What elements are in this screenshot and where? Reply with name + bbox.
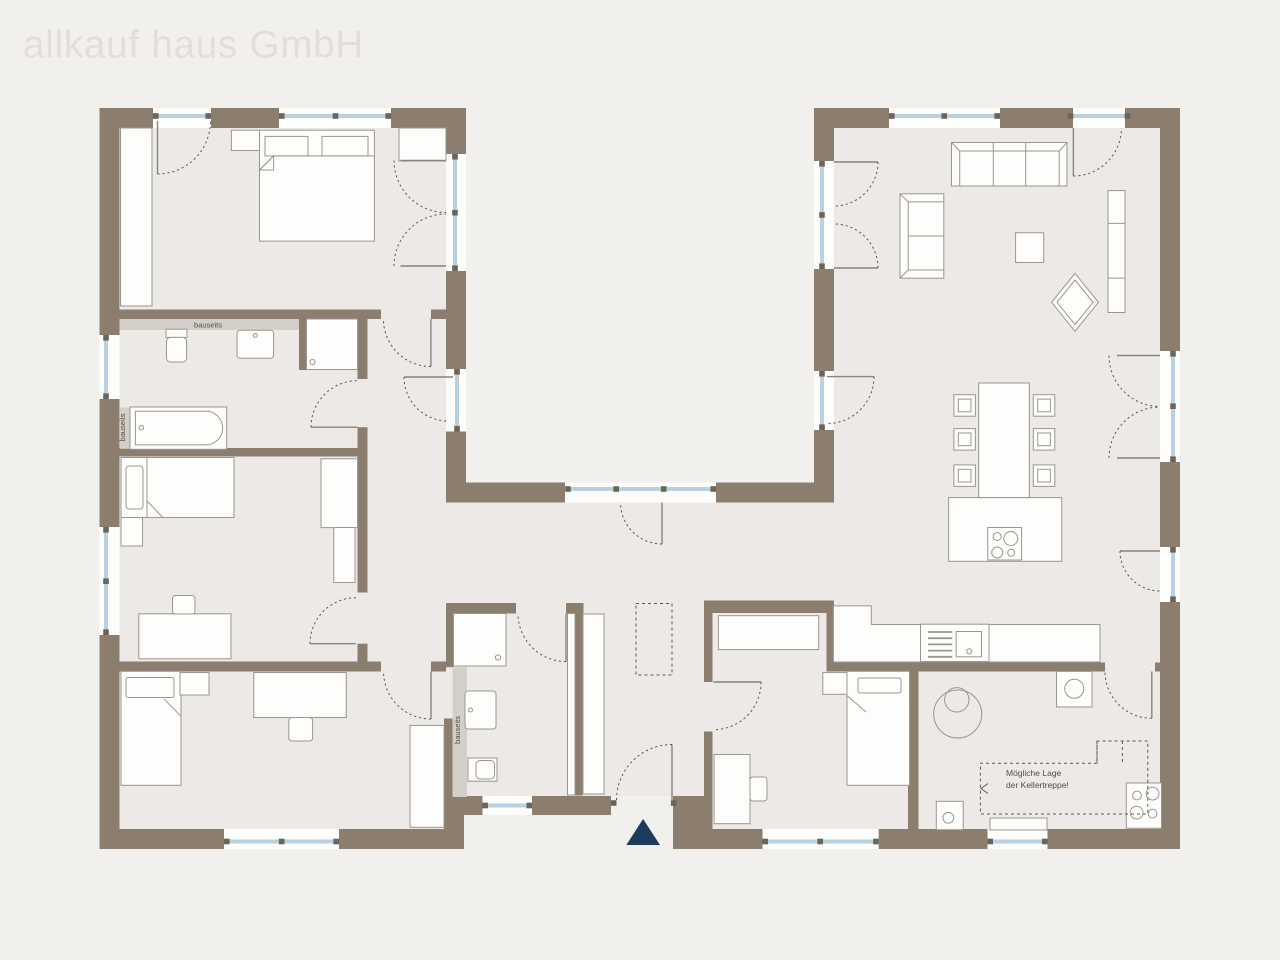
svg-text:der Kellertreppe!: der Kellertreppe!	[1006, 780, 1069, 790]
svg-text:bauseits: bauseits	[118, 413, 127, 441]
svg-text:bauseits: bauseits	[194, 321, 222, 330]
svg-text:Mögliche Lage: Mögliche Lage	[1006, 768, 1062, 778]
svg-text:allkauf haus GmbH: allkauf haus GmbH	[23, 24, 364, 67]
svg-text:bauseits: bauseits	[453, 716, 462, 744]
